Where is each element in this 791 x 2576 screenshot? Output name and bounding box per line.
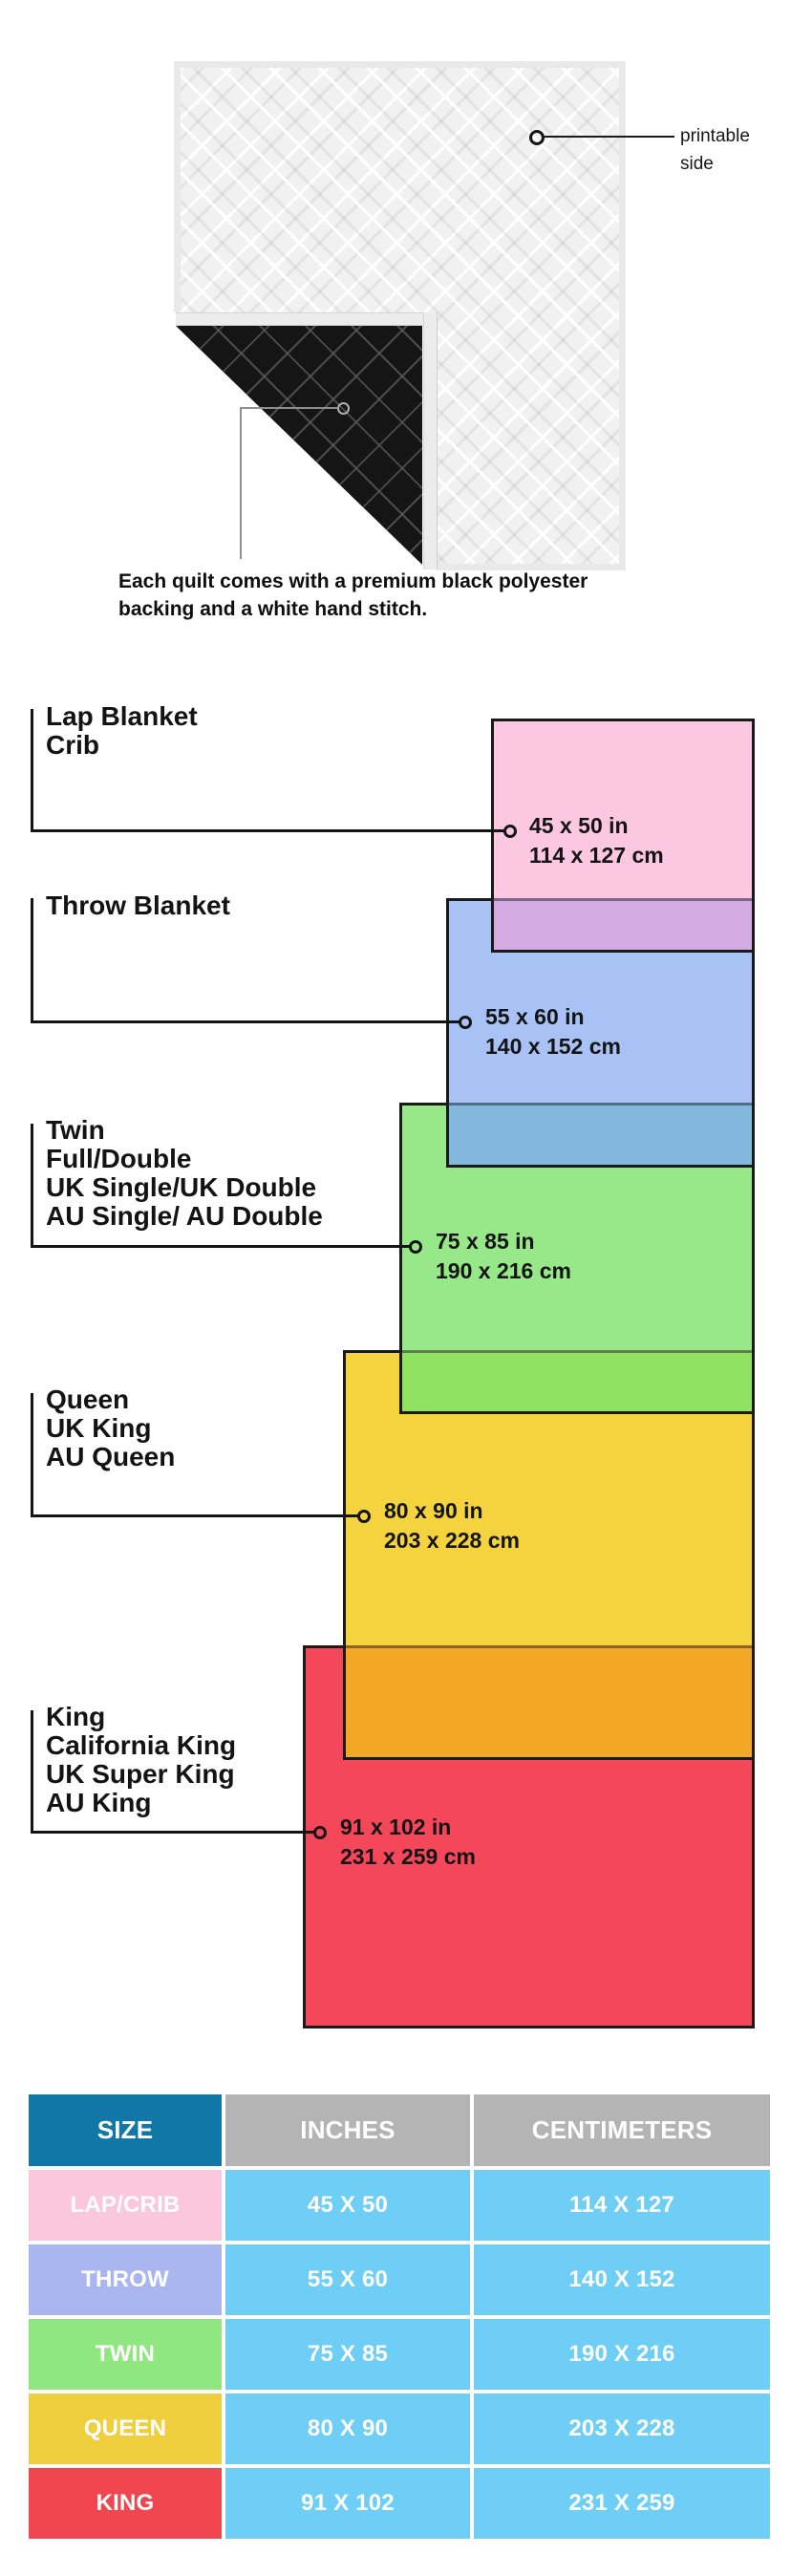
size-name: UK Single/UK Double xyxy=(46,1173,323,1202)
size-name: Crib xyxy=(46,731,198,760)
size-label-queen: Queen UK King AU Queen xyxy=(46,1385,175,1471)
overlap-band-twin-queen xyxy=(402,1350,752,1411)
table-header-size: SIZE xyxy=(29,2094,222,2166)
dimensions-cm: 203 x 228 cm xyxy=(384,1526,520,1556)
leader-line-queen-vertical xyxy=(31,1393,33,1517)
dimension-marker-icon-twin xyxy=(409,1240,422,1254)
size-name: UK Super King xyxy=(46,1760,236,1789)
printable-side-label-line2: side xyxy=(680,150,750,178)
size-name: Lap Blanket xyxy=(46,702,198,731)
size-label-throw: Throw Blanket xyxy=(46,891,230,920)
table-row-queen-inches: 80 X 90 xyxy=(225,2394,470,2464)
dimensions-twin: 75 x 85 in 190 x 216 cm xyxy=(436,1227,571,1286)
size-name: Queen xyxy=(46,1385,175,1414)
printable-side-label-line1: printable xyxy=(680,122,750,150)
table-header-inches: INCHES xyxy=(225,2094,470,2166)
dimension-marker-icon-king xyxy=(313,1826,327,1839)
dimensions-inches: 75 x 85 in xyxy=(436,1227,571,1256)
printable-side-label: printable side xyxy=(680,122,750,178)
leader-line-throw-horizontal xyxy=(32,1020,461,1023)
overlap-band-queen-king xyxy=(346,1645,752,1757)
dimensions-king: 91 x 102 in 231 x 259 cm xyxy=(340,1813,476,1872)
leader-line-twin-horizontal xyxy=(32,1245,412,1248)
size-name: AU Queen xyxy=(46,1443,175,1471)
dimensions-cm: 231 x 259 cm xyxy=(340,1842,476,1872)
leader-line-queen-horizontal xyxy=(32,1514,360,1517)
table-row-throw-size: THROW xyxy=(29,2244,222,2315)
dimension-marker-icon-queen xyxy=(357,1510,371,1523)
size-label-lap-crib: Lap Blanket Crib xyxy=(46,702,198,760)
table-header-centimeters: CENTIMETERS xyxy=(474,2094,770,2166)
size-name: AU Single/ AU Double xyxy=(46,1202,323,1231)
size-name: California King xyxy=(46,1731,236,1760)
size-label-king: King California King UK Super King AU Ki… xyxy=(46,1703,236,1817)
leader-line-throw-vertical xyxy=(31,898,33,1023)
overlap-band-throw-twin xyxy=(449,1103,752,1165)
table-row-throw-cm: 140 X 152 xyxy=(474,2244,770,2315)
dimensions-cm: 190 x 216 cm xyxy=(436,1256,571,1286)
dimensions-lap: 45 x 50 in 114 x 127 cm xyxy=(529,811,664,870)
table-row-lap-size: LAP/CRIB xyxy=(29,2170,222,2241)
quilt-black-backing-fold xyxy=(176,326,422,565)
printable-side-leader-line xyxy=(545,136,674,138)
table-row-throw-inches: 55 X 60 xyxy=(225,2244,470,2315)
table-row-twin-size: TWIN xyxy=(29,2319,222,2390)
table-row-king-cm: 231 X 259 xyxy=(474,2468,770,2539)
dimensions-queen: 80 x 90 in 203 x 228 cm xyxy=(384,1496,520,1556)
leader-line-lap-vertical xyxy=(31,709,33,832)
table-row-lap-cm: 114 X 127 xyxy=(474,2170,770,2241)
leader-line-twin-vertical xyxy=(31,1124,33,1248)
table-row-queen-size: QUEEN xyxy=(29,2394,222,2464)
dimensions-inches: 91 x 102 in xyxy=(340,1813,476,1842)
quilt-size-chart-infographic: printable side Each quilt comes with a p… xyxy=(0,0,791,2576)
size-name: Twin xyxy=(46,1116,323,1145)
leader-line-lap-horizontal xyxy=(32,829,506,832)
size-name: AU King xyxy=(46,1789,236,1817)
dimensions-cm: 140 x 152 cm xyxy=(485,1032,621,1062)
size-table: SIZE INCHES CENTIMETERS LAP/CRIB 45 X 50… xyxy=(29,2094,770,2539)
black-backing-leader-line-vertical xyxy=(240,407,242,559)
leader-line-king-vertical xyxy=(31,1710,33,1834)
dimension-marker-icon-throw xyxy=(459,1016,472,1029)
quilt-binding-edge-horizontal xyxy=(176,312,438,326)
dimensions-inches: 80 x 90 in xyxy=(384,1496,520,1526)
table-row-king-size: KING xyxy=(29,2468,222,2539)
table-row-twin-cm: 190 X 216 xyxy=(474,2319,770,2390)
table-row-king-inches: 91 X 102 xyxy=(225,2468,470,2539)
table-row-lap-inches: 45 X 50 xyxy=(225,2170,470,2241)
size-label-twin: Twin Full/Double UK Single/UK Double AU … xyxy=(46,1116,323,1231)
size-name: Throw Blanket xyxy=(46,891,230,920)
dimensions-inches: 55 x 60 in xyxy=(485,1002,621,1032)
dimensions-inches: 45 x 50 in xyxy=(529,811,664,841)
black-backing-leader-line-horizontal xyxy=(240,407,338,409)
quilt-binding-edge-vertical xyxy=(423,312,438,569)
quilt-caption: Each quilt comes with a premium black po… xyxy=(118,568,650,623)
overlap-band-lap-throw xyxy=(494,898,752,950)
dimensions-throw: 55 x 60 in 140 x 152 cm xyxy=(485,1002,621,1062)
size-name: Full/Double xyxy=(46,1145,323,1173)
size-name: UK King xyxy=(46,1414,175,1443)
size-name: King xyxy=(46,1703,236,1731)
dimensions-cm: 114 x 127 cm xyxy=(529,841,664,870)
table-row-queen-cm: 203 X 228 xyxy=(474,2394,770,2464)
black-backing-marker-icon xyxy=(337,402,350,415)
leader-line-king-horizontal xyxy=(32,1831,316,1834)
table-row-twin-inches: 75 X 85 xyxy=(225,2319,470,2390)
dimension-marker-icon-lap xyxy=(503,825,517,838)
printable-side-marker-icon xyxy=(529,130,545,145)
